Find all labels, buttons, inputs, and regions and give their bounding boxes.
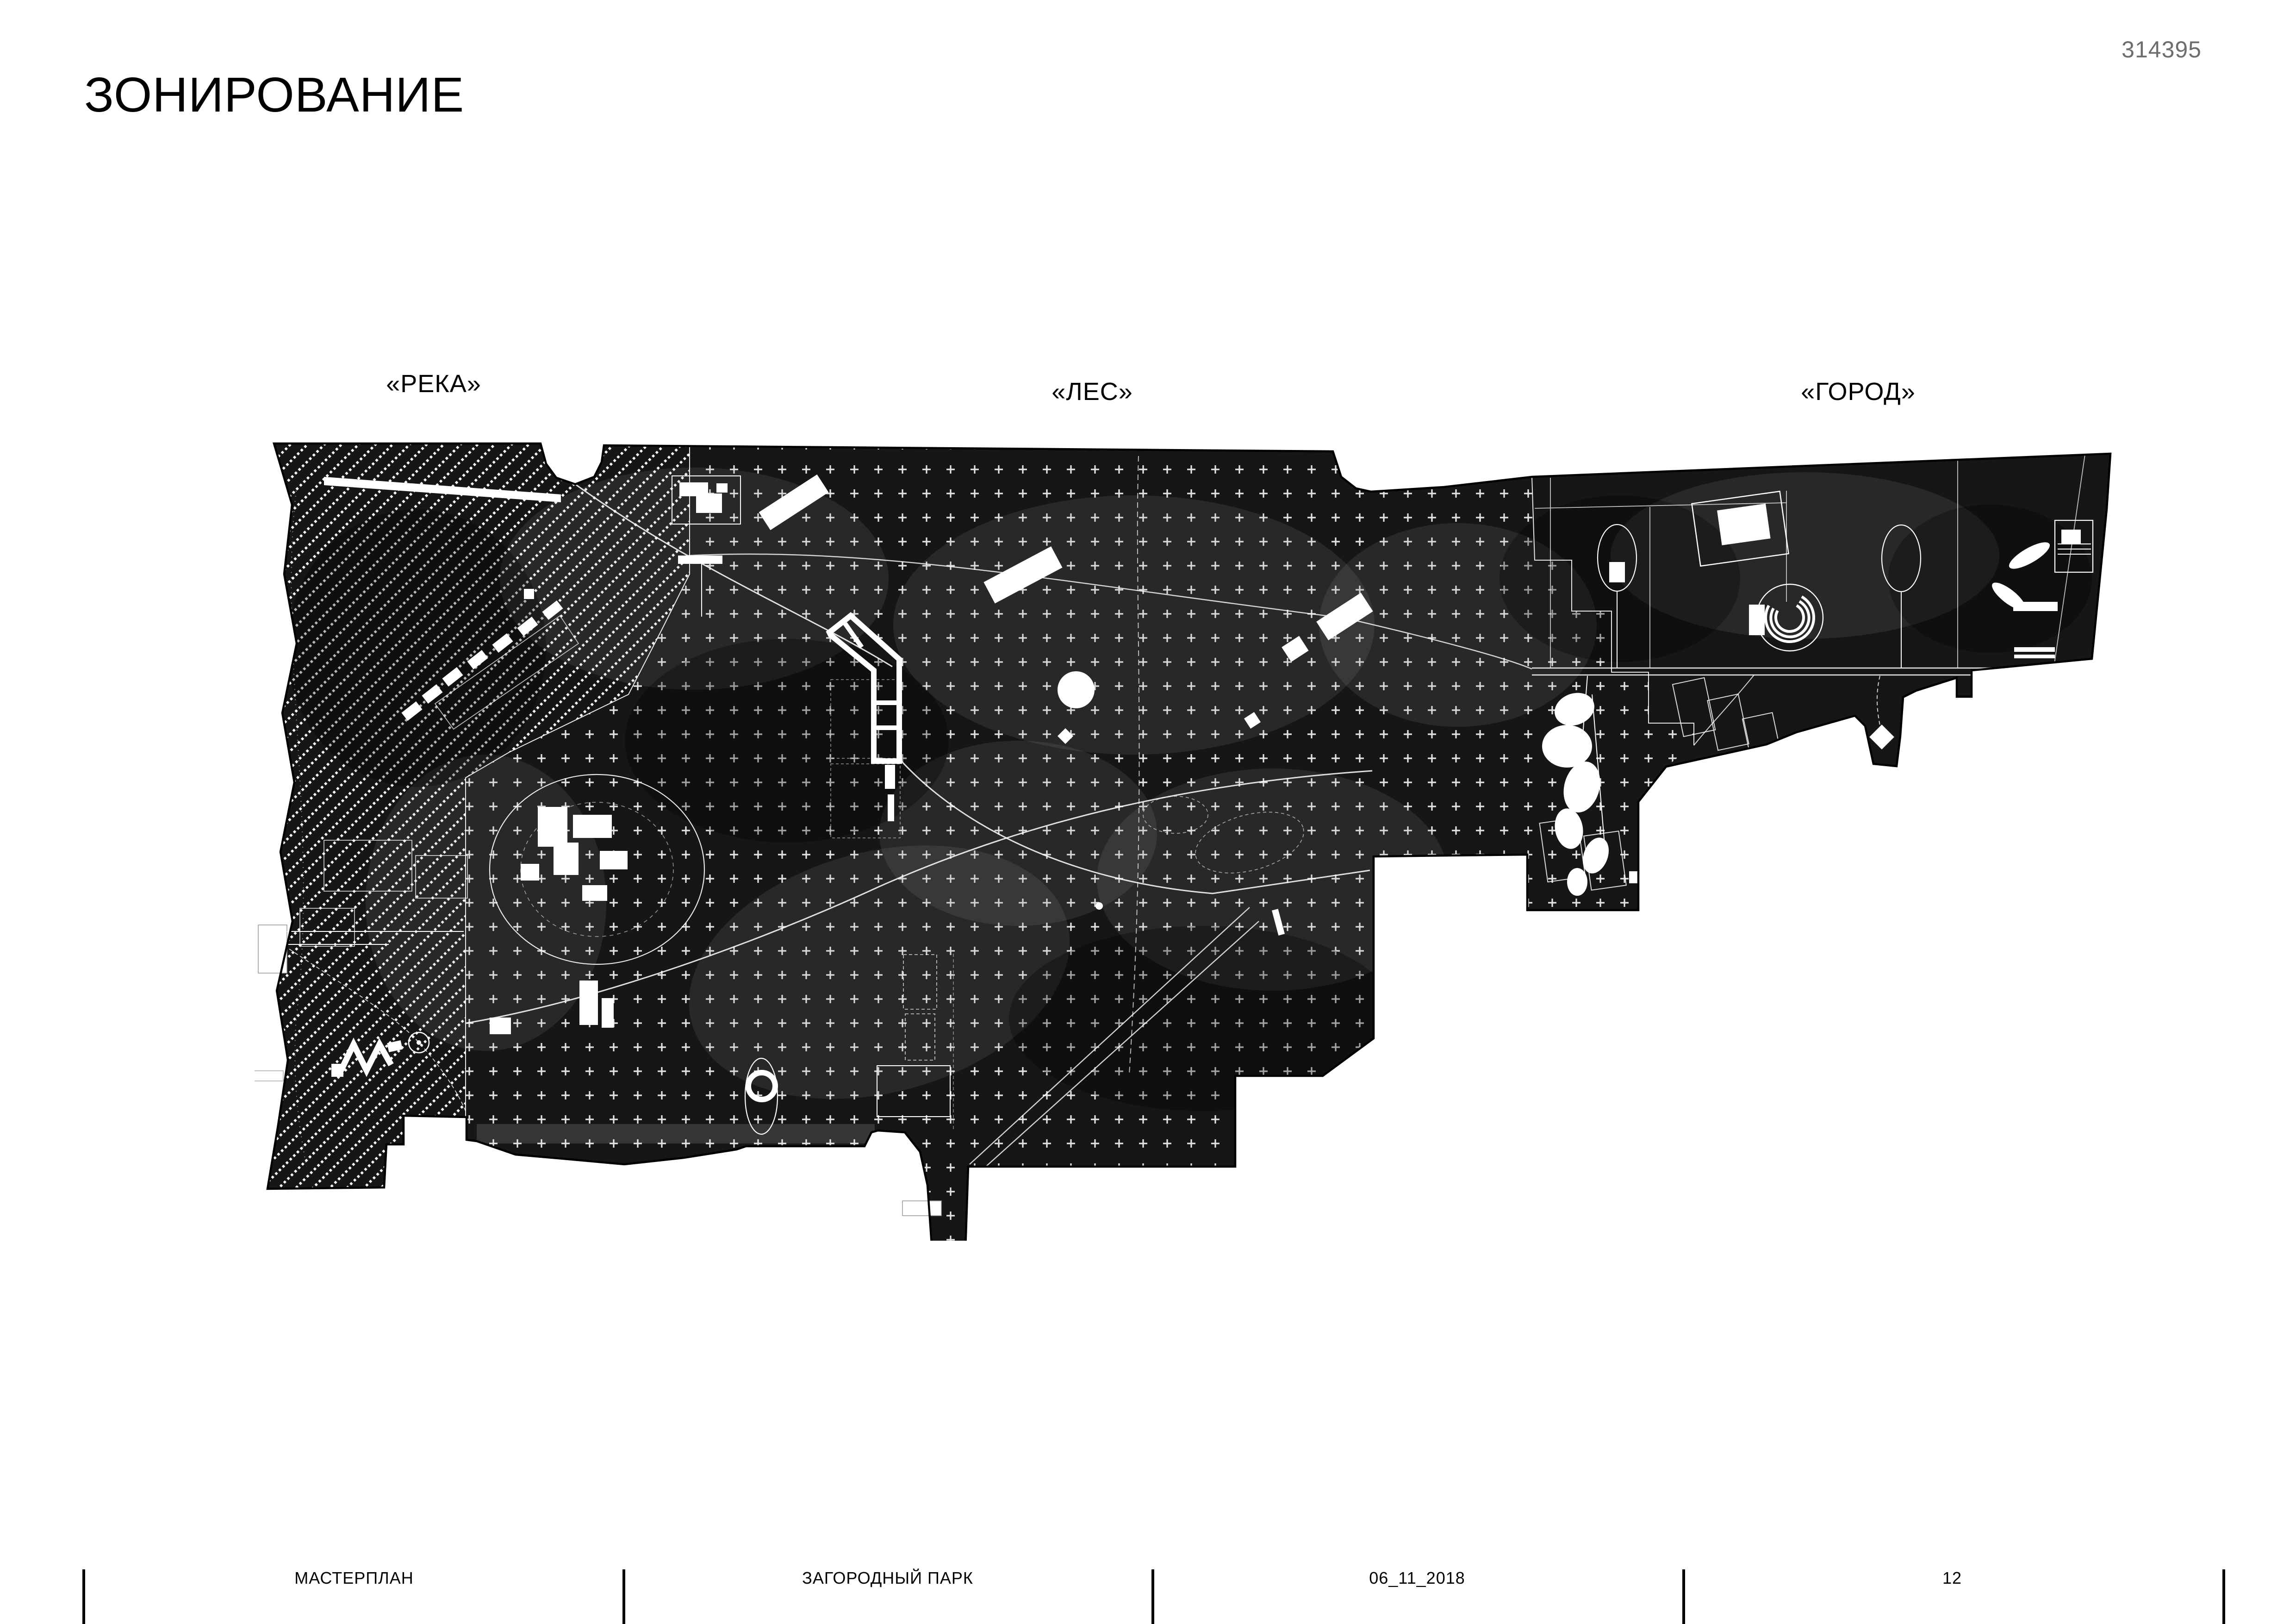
zone-label-river: «РЕКА»: [386, 369, 481, 398]
footer-divider-2: [622, 1569, 625, 1624]
zone-label-city: «ГОРОД»: [1801, 377, 1916, 406]
pond: [1058, 671, 1095, 708]
footer-title-block: МАСТЕРПЛАН ЗАГОРОДНЫЙ ПАРК 06_11_2018 12: [0, 1568, 2296, 1624]
footer-divider-3: [1151, 1569, 1154, 1624]
walkway-bar-a: [885, 765, 895, 789]
footer-project-type: МАСТЕРПЛАН: [294, 1568, 414, 1588]
footer-divider-1: [82, 1569, 85, 1624]
footer-project-name: ЗАГОРОДНЫЙ ПАРК: [802, 1568, 973, 1588]
jetty: [255, 1071, 283, 1081]
zone-label-forest: «ЛЕС»: [1052, 377, 1133, 406]
page-title: ЗОНИРОВАНИЕ: [84, 70, 464, 119]
footer-divider-5: [2222, 1569, 2225, 1624]
walkway-bar-b: [888, 794, 894, 821]
pool: [902, 1201, 941, 1216]
zoning-map-svg: [255, 431, 2208, 1241]
footer-divider-4: [1682, 1569, 1685, 1624]
footer-page-number: 12: [1942, 1568, 1962, 1588]
footer-date: 06_11_2018: [1369, 1568, 1465, 1588]
zoning-map: [255, 431, 2208, 1241]
sheet-number: 314395: [2122, 36, 2202, 63]
